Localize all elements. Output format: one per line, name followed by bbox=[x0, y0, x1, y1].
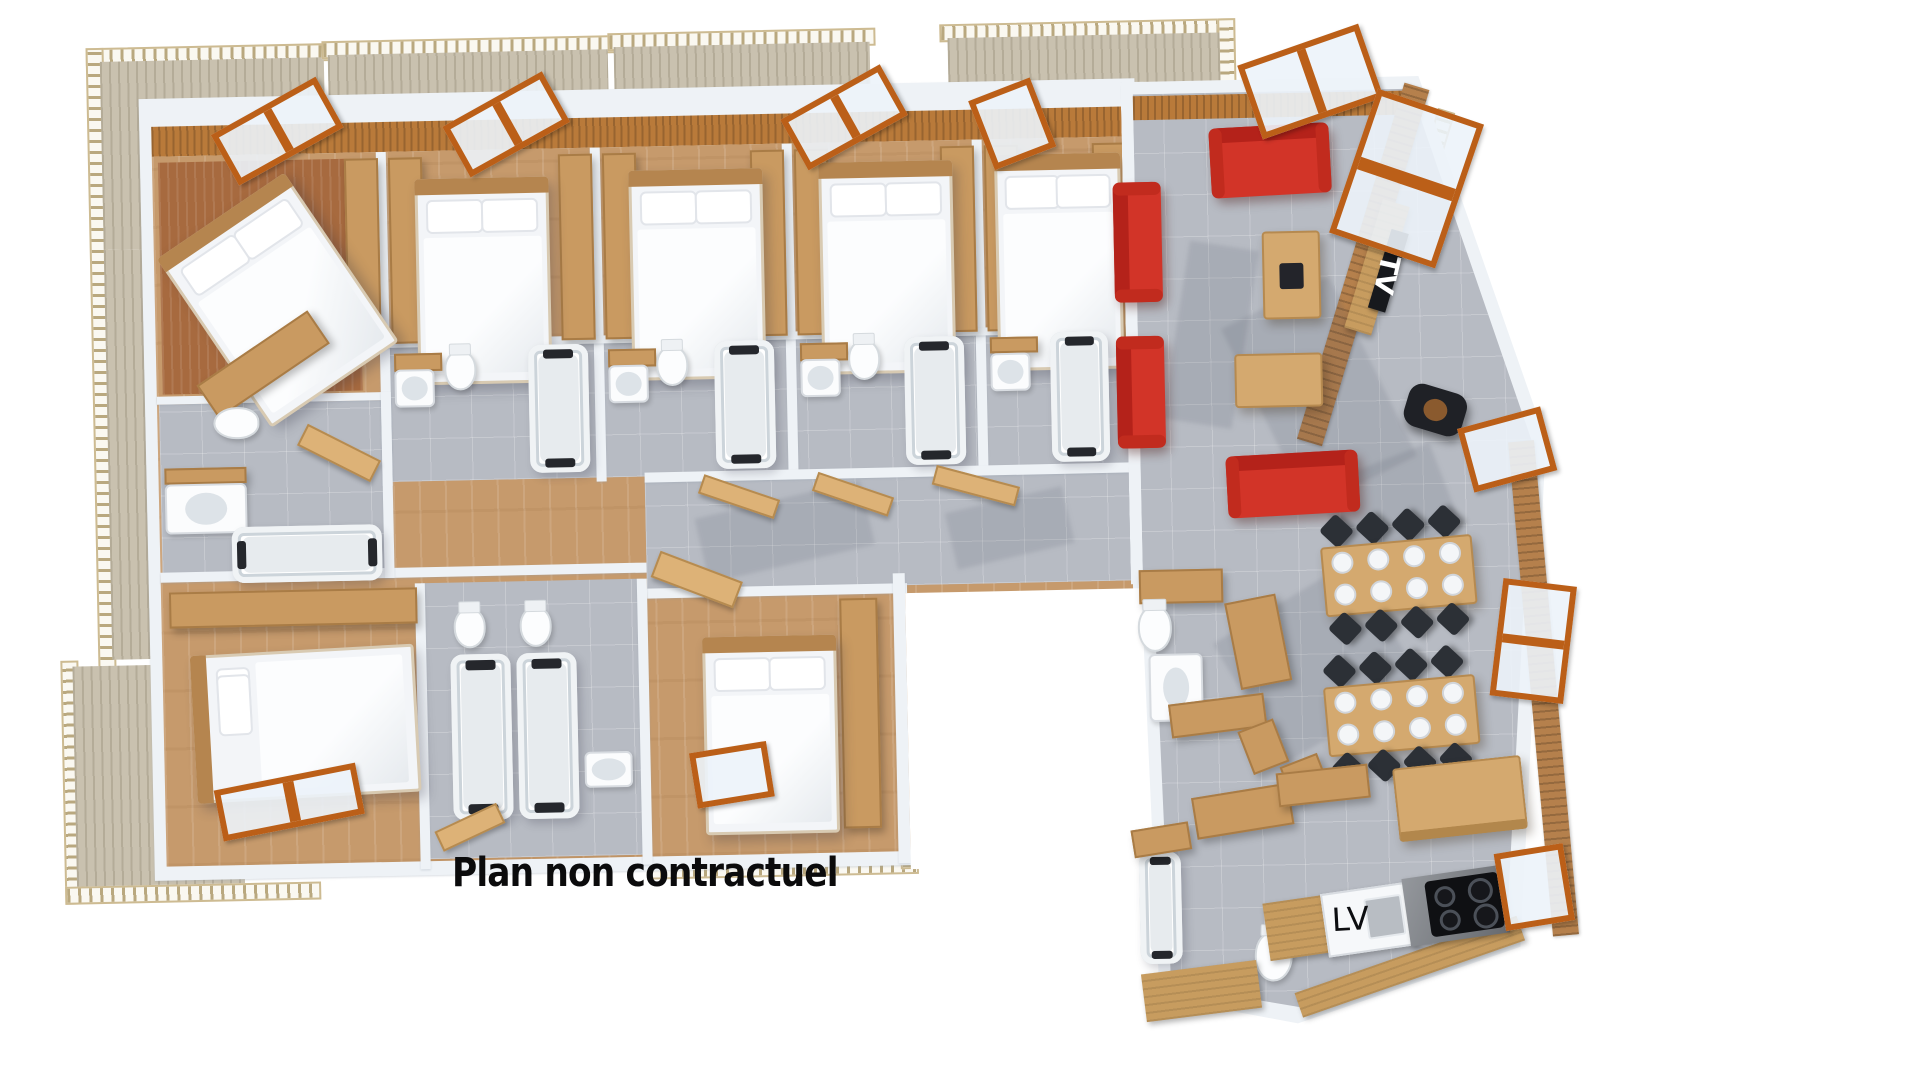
sofa-back bbox=[1116, 336, 1133, 448]
bathtub-headrest bbox=[921, 450, 951, 460]
window-bar bbox=[492, 101, 522, 146]
sink-basin bbox=[807, 366, 833, 391]
bathtub-basin bbox=[526, 662, 569, 809]
dining-chair bbox=[1322, 653, 1357, 688]
bed-pillow bbox=[425, 199, 483, 234]
bathtub bbox=[232, 524, 383, 583]
bed-pillow bbox=[1056, 174, 1111, 209]
bathtub-headrest bbox=[368, 538, 378, 566]
bathtub-basin bbox=[1149, 862, 1173, 954]
dishwasher-label: LV bbox=[1331, 899, 1371, 939]
bathtub-basin bbox=[538, 354, 580, 463]
bathtub bbox=[450, 653, 513, 820]
bed-headboard bbox=[702, 635, 836, 654]
sofa-arm bbox=[1118, 435, 1166, 449]
sink-basin bbox=[592, 758, 626, 781]
toilet-tank bbox=[524, 600, 547, 612]
bathtub-headrest bbox=[919, 341, 949, 351]
dining-chair bbox=[1393, 647, 1428, 682]
bed-pillow bbox=[829, 182, 887, 217]
red-sofa bbox=[1113, 182, 1164, 303]
bathtub-headrest bbox=[534, 802, 564, 813]
red-sofa bbox=[1116, 336, 1166, 449]
bed-pillow bbox=[713, 657, 771, 692]
bathtub bbox=[904, 336, 967, 465]
bed-pillow bbox=[216, 674, 253, 737]
wardrobe bbox=[169, 587, 418, 628]
bathtub-headrest bbox=[531, 658, 561, 669]
bathtub-headrest bbox=[237, 541, 247, 569]
sink bbox=[608, 364, 649, 403]
bathtub bbox=[516, 652, 579, 819]
hob-burner bbox=[1433, 885, 1457, 909]
bed-pillow bbox=[639, 190, 697, 225]
exterior-void bbox=[905, 588, 1155, 869]
window-bar bbox=[1357, 157, 1456, 201]
bathtub-basin bbox=[1060, 341, 1100, 452]
kitchen-island bbox=[1392, 755, 1528, 842]
sink bbox=[584, 751, 633, 788]
hob-burner bbox=[1466, 876, 1494, 904]
bathtub-headrest bbox=[731, 454, 761, 464]
kitchen-counter-gray bbox=[1401, 865, 1510, 947]
bathtub-headrest bbox=[1067, 447, 1096, 457]
bathroom-shelf bbox=[990, 336, 1038, 353]
bathtub-basin bbox=[724, 350, 766, 459]
toilet-tank bbox=[449, 343, 472, 355]
bathroom-shelf bbox=[164, 467, 246, 485]
hob-burner bbox=[1438, 908, 1462, 932]
bed-pillow bbox=[480, 198, 538, 233]
wardrobe bbox=[558, 154, 596, 341]
sofa-arm bbox=[1116, 336, 1164, 350]
bathtub-headrest bbox=[729, 345, 759, 355]
dining-chair bbox=[1358, 650, 1393, 685]
sink bbox=[165, 483, 248, 535]
bed-pillow bbox=[694, 189, 752, 224]
sink-basin bbox=[401, 376, 427, 401]
bathtub-headrest bbox=[1064, 336, 1093, 346]
bathtub-basin bbox=[914, 346, 956, 455]
bathtub-headrest bbox=[465, 660, 495, 671]
toilet-tank bbox=[458, 601, 481, 613]
dining-chair bbox=[1319, 514, 1354, 549]
toilet-tank bbox=[852, 333, 875, 345]
window-bar bbox=[1296, 48, 1326, 113]
disclaimer-text: Plan non contractuel bbox=[452, 850, 838, 896]
floorplan: TV bbox=[0, 0, 1920, 1080]
bed-pillow bbox=[768, 656, 826, 691]
sink-basin bbox=[615, 372, 641, 397]
window-bar bbox=[830, 94, 860, 139]
stove-hob bbox=[1424, 871, 1505, 937]
bathtub bbox=[1050, 331, 1111, 462]
sink bbox=[394, 369, 435, 408]
bed bbox=[702, 635, 840, 836]
toilet bbox=[213, 407, 260, 440]
bathtub-headrest bbox=[1149, 857, 1170, 865]
bed-pillow bbox=[1005, 175, 1060, 210]
dining-chair bbox=[1391, 507, 1426, 542]
sofa-arm bbox=[1115, 289, 1163, 303]
bed-headboard bbox=[414, 177, 548, 196]
bathtub-basin bbox=[242, 534, 373, 573]
sink bbox=[990, 352, 1031, 391]
bathtub bbox=[528, 344, 591, 473]
dining-chair bbox=[1355, 510, 1390, 545]
sink-basin bbox=[997, 360, 1023, 385]
bathtub-headrest bbox=[543, 349, 573, 359]
bed-headboard bbox=[818, 160, 952, 179]
window-frame bbox=[1494, 843, 1576, 931]
sink-basin bbox=[185, 492, 228, 525]
side-table bbox=[1234, 352, 1323, 408]
bathtub bbox=[1139, 851, 1183, 964]
window-bar bbox=[283, 781, 301, 822]
sink bbox=[800, 358, 841, 397]
hob-burner bbox=[1472, 902, 1500, 930]
sofa-arm bbox=[1113, 182, 1161, 196]
red-sofa bbox=[1225, 449, 1360, 518]
bed-headboard bbox=[628, 168, 762, 187]
bathtub-basin bbox=[460, 664, 503, 811]
sofa-back bbox=[1113, 182, 1131, 302]
bathtub-headrest bbox=[1151, 951, 1172, 959]
dining-group bbox=[1317, 506, 1476, 645]
window-bar bbox=[263, 108, 294, 153]
window-bar bbox=[1502, 633, 1565, 650]
floorplan-scene: TV bbox=[0, 0, 1920, 1080]
bed-pillow bbox=[884, 181, 942, 216]
stove-glow bbox=[1421, 396, 1450, 424]
bathtub bbox=[714, 340, 777, 469]
toilet-tank bbox=[1142, 599, 1166, 612]
toilet-tank bbox=[661, 339, 684, 351]
dining-chair bbox=[1426, 504, 1461, 539]
bathtub-headrest bbox=[545, 458, 575, 468]
coffee-table bbox=[1262, 230, 1322, 319]
table-decor bbox=[1279, 263, 1304, 289]
dining-chair bbox=[1429, 644, 1464, 679]
window-frame bbox=[1490, 578, 1577, 704]
wardrobe bbox=[839, 598, 882, 829]
